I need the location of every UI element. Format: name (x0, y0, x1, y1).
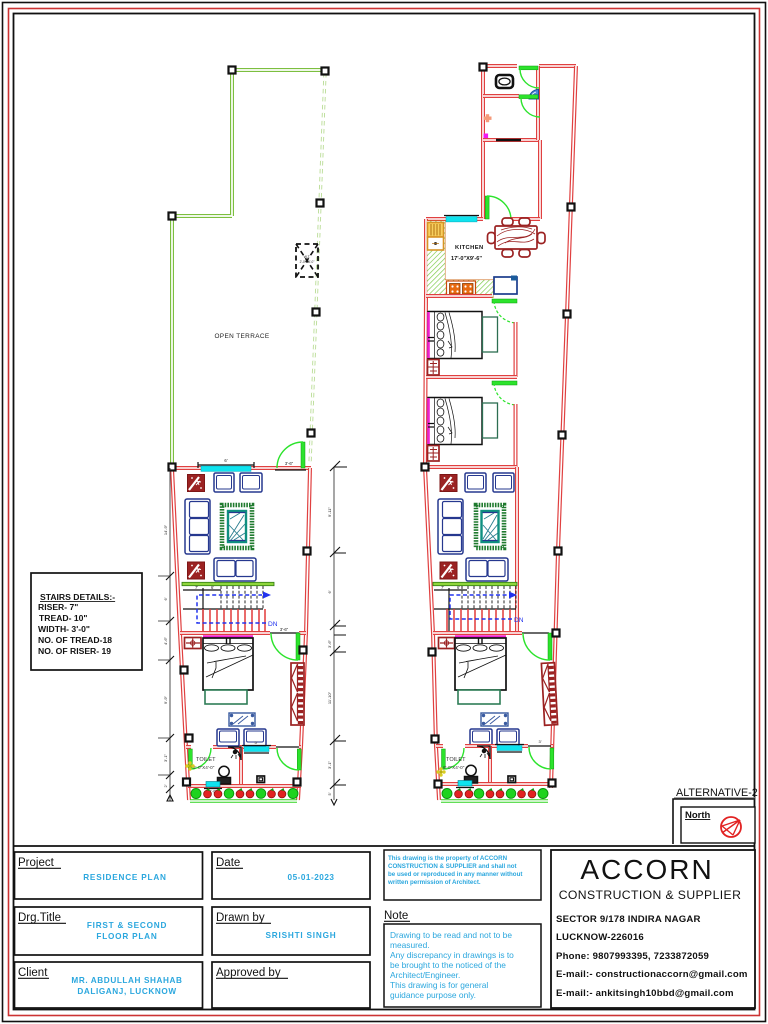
svg-text:14'-9": 14'-9" (163, 524, 168, 535)
svg-text:Any discrepancy in drawings: Any discrepancy in drawings is to (390, 950, 514, 960)
svg-text:STAIRS DETAILS:-: STAIRS DETAILS:- (40, 592, 115, 602)
svg-text:11'-10": 11'-10" (327, 691, 332, 704)
svg-text:NO. OF TREAD-18: NO. OF TREAD-18 (38, 635, 112, 645)
svg-text:Phone: 9807993395, 7233872059: Phone: 9807993395, 7233872059 (556, 951, 709, 962)
svg-text:FLOOR PLAN: FLOOR PLAN (96, 932, 157, 941)
svg-text:Date: Date (216, 857, 240, 869)
svg-text:DN: DN (268, 621, 278, 628)
svg-text:Project: Project (18, 857, 55, 869)
svg-text:OPEN TERRACE: OPEN TERRACE (214, 333, 269, 340)
svg-text:DN: DN (514, 617, 524, 624)
svg-text:6': 6' (457, 585, 460, 590)
svg-text:9'-9": 9'-9" (163, 695, 168, 704)
svg-text:3': 3' (539, 739, 542, 744)
svg-text:6': 6' (224, 458, 227, 463)
svg-text:17'-0"X9'-6": 17'-0"X9'-6" (451, 256, 482, 262)
svg-text:LUCKNOW-226016: LUCKNOW-226016 (556, 932, 644, 943)
svg-text:3'-1": 3'-1" (327, 760, 332, 769)
svg-text:Drawn by: Drawn by (216, 912, 265, 924)
svg-text:This drawing is for: This drawing is for general (390, 980, 488, 990)
svg-text:W.T.: W.T. (304, 255, 311, 259)
svg-text:5': 5' (255, 740, 258, 745)
svg-text:TREAD- 10": TREAD- 10" (39, 613, 87, 623)
svg-text:6': 6' (327, 590, 332, 593)
svg-text:SECTOR 9/178 INDIRA NAGAR: SECTOR 9/178 INDIRA NAGAR (556, 914, 701, 925)
svg-text:6'-0"X4'-0": 6'-0"X4'-0" (443, 765, 465, 770)
svg-text:3'-6": 3'-6" (327, 639, 332, 648)
svg-text:3'-6": 3'-6" (285, 461, 294, 466)
svg-text:RESIDENCE PLAN: RESIDENCE PLAN (83, 873, 167, 882)
svg-text:7': 7' (195, 585, 198, 590)
svg-text:Architect/Engineer.: Architect/Engineer. (390, 970, 460, 980)
svg-text:guidance purpose only.: guidance purpose only. (390, 990, 476, 1000)
svg-text:TOILET: TOILET (196, 757, 216, 763)
svg-text:MR. ABDULLAH SHAHAB: MR. ABDULLAH SHAHAB (71, 976, 182, 985)
svg-text:ALTERNATIVE-2: ALTERNATIVE-2 (676, 787, 758, 799)
svg-text:7': 7' (441, 585, 444, 590)
svg-text:6'-0"X4'-0": 6'-0"X4'-0" (193, 765, 215, 770)
svg-text:Note: Note (384, 910, 408, 922)
svg-text:Client: Client (18, 967, 48, 979)
svg-text:be used or reproduced in any m: be used or reproduced in any manner with… (388, 871, 522, 878)
svg-text:WIDTH- 3'-0": WIDTH- 3'-0" (38, 624, 90, 634)
svg-text:6': 6' (163, 597, 168, 600)
svg-text:E-mail:- constructionaccorn@g: E-mail:- constructionaccorn@gmail.com (556, 969, 748, 980)
svg-text:05-01-2023: 05-01-2023 (288, 873, 335, 882)
svg-text:CONSTRUCTION & SUPPLIER: CONSTRUCTION & SUPPLIER (559, 888, 742, 902)
svg-text:9'-11": 9'-11" (327, 506, 332, 516)
svg-text:FIRST & SECOND: FIRST & SECOND (87, 921, 167, 930)
svg-text:Approved by: Approved by (216, 967, 281, 979)
svg-text:CONSTRUCTION & SUPPLIER and sh: CONSTRUCTION & SUPPLIER and shall not (388, 863, 517, 870)
svg-text:3'-6": 3'-6" (280, 627, 289, 632)
svg-text:6': 6' (211, 585, 214, 590)
svg-text:DALIGANJ, LUCKNOW: DALIGANJ, LUCKNOW (77, 987, 176, 996)
svg-text:SRISHTI SINGH: SRISHTI SINGH (266, 931, 337, 940)
svg-text:TOILET: TOILET (446, 757, 466, 763)
svg-text:RISER- 7": RISER- 7" (38, 602, 78, 612)
svg-text:written permission of Architec: written permission of Architect. (387, 879, 481, 886)
svg-text:Drg.Title: Drg.Title (18, 912, 61, 924)
svg-text:2': 2' (163, 784, 168, 787)
svg-text:North: North (685, 810, 711, 821)
svg-text:NO. OF RISER- 19: NO. OF RISER- 19 (38, 646, 111, 656)
svg-text:3'-1": 3'-1" (163, 753, 168, 762)
svg-text:Drawing to be read and no: Drawing to be read and not to be (390, 930, 512, 940)
svg-text:ACCORN: ACCORN (580, 854, 713, 885)
svg-text:measured.: measured. (390, 940, 430, 950)
svg-text:E-mail:- ankitsingh10bbd@gmai: E-mail:- ankitsingh10bbd@gmail.com (556, 988, 734, 999)
svg-text:be brought to the noticed: be brought to the noticed of the (390, 960, 506, 970)
svg-text:4'-6": 4'-6" (163, 636, 168, 645)
svg-text:This drawing is the property o: This drawing is the property of ACCORN (388, 855, 508, 862)
svg-text:KITCHEN: KITCHEN (455, 245, 484, 251)
svg-text:2'-0"X3'-0": 2'-0"X3'-0" (300, 260, 315, 264)
svg-text:5': 5' (327, 792, 332, 795)
